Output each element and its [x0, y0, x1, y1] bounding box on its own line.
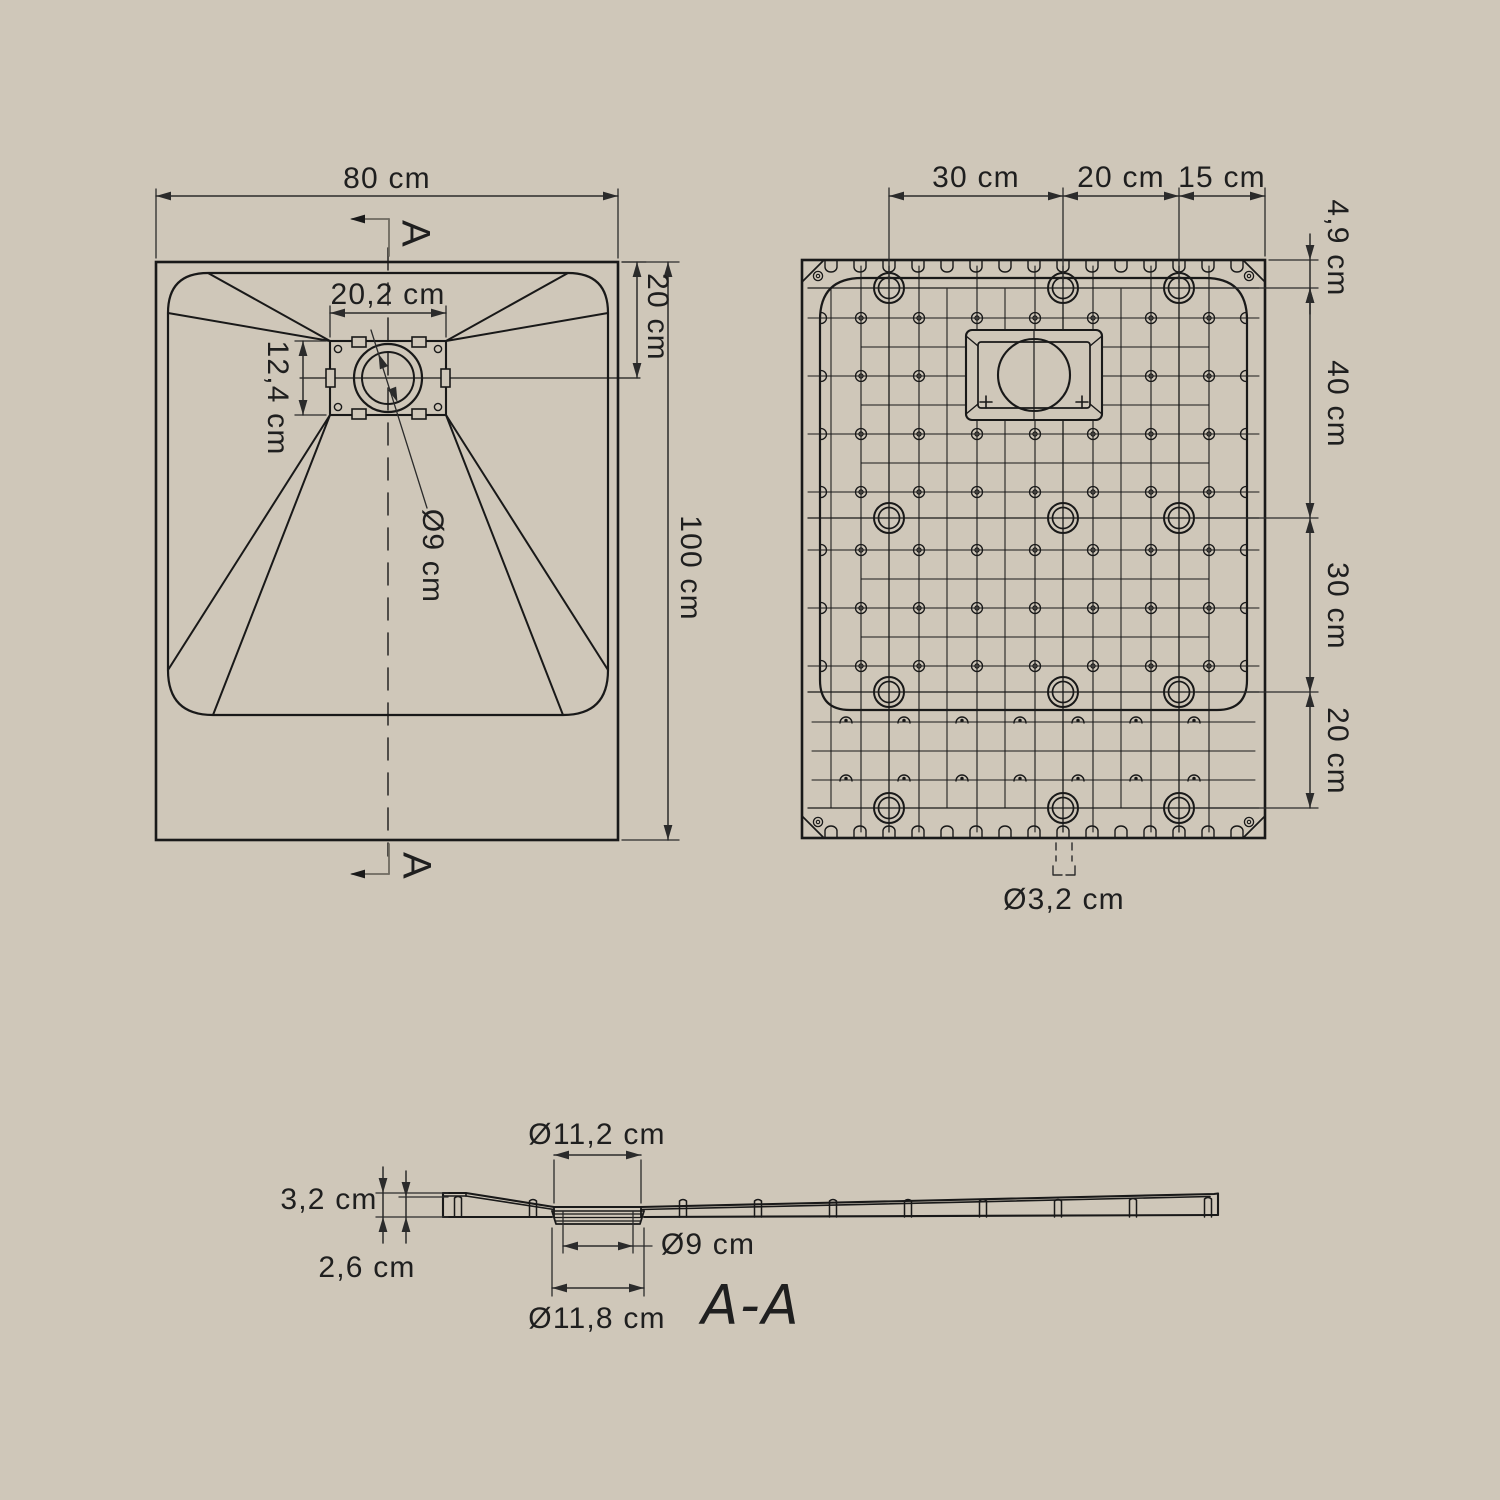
technical-drawing-page: 80 cm 20,2 cm 12,4 cm 20 cm 100 cm Ø9 cm… — [0, 0, 1500, 1500]
bottom-view-labels: 30 cm 20 cm 15 cm 4,9 cm 40 cm 30 cm 20 … — [932, 161, 1354, 916]
section-marker-letter-bottom: A — [394, 852, 438, 880]
dim-label-height-100: 100 cm — [674, 515, 707, 621]
drawing-canvas: 80 cm 20,2 cm 12,4 cm 20 cm 100 cm Ø9 cm… — [0, 0, 1500, 1500]
dim-label-side-40: 40 cm — [1321, 360, 1354, 448]
dim-label-top-15: 15 cm — [1178, 161, 1266, 194]
section-marker-letter-top: A — [393, 220, 437, 248]
dim-label-section-drain-diameter: Ø9 cm — [661, 1228, 755, 1261]
dim-label-side-30: 30 cm — [1321, 562, 1354, 650]
dim-label-drain-diameter: Ø9 cm — [416, 509, 449, 603]
dim-label-side-20: 20 cm — [1321, 707, 1354, 795]
dim-label-foot-hole: Ø3,2 cm — [1003, 883, 1125, 916]
section-view-labels: Ø11,2 cm 3,2 cm 2,6 cm Ø9 cm Ø11,8 cm A-… — [280, 1118, 800, 1337]
dim-label-edge-height: 3,2 cm — [280, 1183, 377, 1216]
dim-label-recess-diameter: Ø11,2 cm — [528, 1118, 665, 1151]
dim-label-top-20: 20 cm — [1077, 161, 1165, 194]
dim-label-side-49: 4,9 cm — [1321, 199, 1354, 296]
dim-label-top-30: 30 cm — [932, 161, 1020, 194]
top-view-labels: 80 cm 20,2 cm 12,4 cm 20 cm 100 cm Ø9 cm… — [261, 162, 707, 880]
dim-label-drain-height: 12,4 cm — [261, 340, 294, 455]
section-title: A-A — [698, 1274, 800, 1337]
dim-label-drain-width: 20,2 cm — [330, 278, 445, 311]
bottom-view-geometry — [802, 188, 1318, 875]
dim-label-drain-offset: 20 cm — [641, 273, 674, 361]
dim-label-base-height: 2,6 cm — [318, 1251, 415, 1284]
dim-label-width-80: 80 cm — [343, 162, 431, 195]
dim-label-flange-diameter: Ø11,8 cm — [528, 1302, 665, 1335]
